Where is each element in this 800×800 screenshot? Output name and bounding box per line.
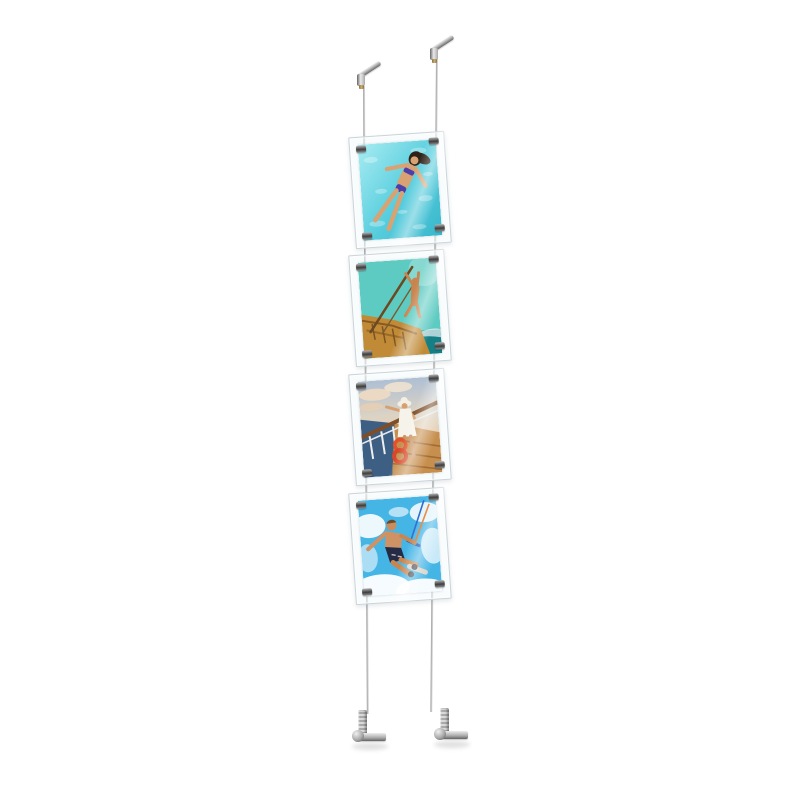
cable-grip: [435, 342, 445, 350]
cable-grip: [356, 501, 366, 509]
floor-cable-tensioner-left: [350, 708, 394, 748]
cable-grip: [356, 382, 366, 390]
poster-photo-1: [358, 139, 443, 240]
poster-photo-3: [358, 376, 443, 477]
cable-grip: [362, 469, 372, 477]
cable-grip: [362, 232, 372, 240]
poster-panel-4: [348, 487, 452, 605]
poster-panel-3: [348, 368, 452, 486]
product-photo-stage: [0, 0, 800, 800]
tensioner-disc: [434, 728, 446, 740]
cable-grip: [435, 224, 445, 232]
cable-grip: [356, 263, 366, 271]
poster-panel-2: [348, 249, 452, 367]
cable-grip: [428, 137, 438, 145]
ceiling-cable-anchor-right: [426, 34, 460, 68]
tensioner-disc: [352, 730, 364, 742]
cable-grip: [356, 145, 366, 153]
anchor-nut: [432, 59, 437, 63]
cable-grip: [362, 588, 372, 596]
poster-panel-1: [348, 131, 452, 249]
cable-grip: [428, 493, 438, 501]
floor-cable-tensioner-right: [432, 706, 476, 746]
cable-grip: [428, 255, 438, 263]
cable-grip: [435, 580, 445, 588]
anchor-nut: [359, 85, 364, 89]
poster-photo-4: [358, 495, 443, 596]
cable-grip: [362, 350, 372, 358]
floor-shadow: [352, 743, 388, 750]
cable-grip: [435, 461, 445, 469]
poster-photo-2: [358, 257, 443, 358]
cable-grip: [428, 374, 438, 382]
ceiling-cable-anchor-left: [353, 60, 387, 94]
floor-shadow: [434, 741, 470, 748]
